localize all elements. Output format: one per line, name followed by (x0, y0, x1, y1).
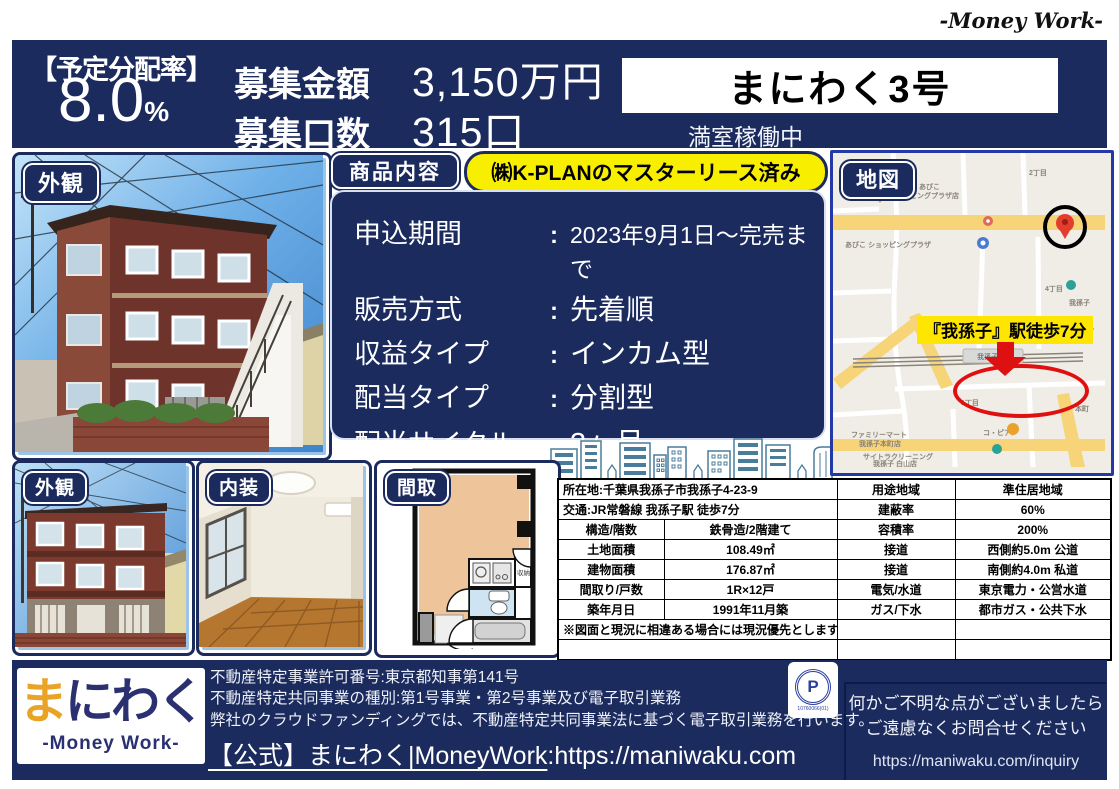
table-row: 建物面積 176.87㎡ 接道 南側約4.0m 私道 (558, 560, 1111, 580)
map-label: サイトラクリーニング (863, 452, 933, 461)
bcr-value-cell: 60% (955, 500, 1111, 520)
map-section-label: 地図 (841, 161, 915, 199)
gas-value-cell: 都市ガス・公共下水 (955, 600, 1111, 620)
flyer-page: -Money Work- 【予定分配率】 8.0% 募集金額 3,150万円 募… (0, 0, 1119, 789)
built-value-cell: 1991年11月築 (664, 600, 837, 620)
table-row: 所在地:千葉県我孫子市我孫子4-23-9 用途地域 準住居地域 (558, 479, 1111, 500)
row-value: 2023年9月1日〜完売まで (570, 216, 814, 284)
station-walk-flag: 『我孫子』駅徒歩7分 (917, 316, 1093, 344)
occupancy-status: 満室稼働中 (688, 118, 803, 152)
row-value: インカム型 (570, 332, 710, 372)
table-row: 構造/階数 鉄骨造/2階建て 容積率 200% (558, 520, 1111, 540)
skyline-illustration (548, 437, 840, 479)
gas-label-cell: ガス/下水 (837, 600, 955, 620)
land-area-label-cell: 土地面積 (558, 540, 664, 560)
road-value-cell: 西側約5.0m 公道 (955, 540, 1111, 560)
table-row: 交通:JR常磐線 我孫子駅 徒歩7分 建蔽率 60% (558, 500, 1111, 520)
road2-label-cell: 接道 (837, 560, 955, 580)
product-name-box: まにわく3号 (622, 58, 1058, 113)
exterior-main-label: 外観 (23, 163, 99, 203)
empty-cell (837, 620, 955, 640)
pmark-number: 10760066(01) (797, 706, 828, 712)
inquiry-url[interactable]: https://maniwaku.com/inquiry (873, 753, 1079, 771)
inquiry-line-2: ご遠慮なくお問合せください (866, 718, 1087, 741)
row-value: 先着順 (570, 288, 654, 328)
empty-cell (955, 640, 1111, 661)
property-spec-table: 所在地:千葉県我孫子市我孫子4-23-9 用途地域 準住居地域 交通:JR常磐線… (557, 478, 1112, 661)
layout-label-cell: 間取り/戸数 (558, 580, 664, 600)
row-label: 申込期間 (354, 212, 550, 251)
zoning-label-cell: 用途地域 (837, 479, 955, 500)
built-label-cell: 築年月日 (558, 600, 664, 620)
product-section-label: 商品内容 (331, 153, 459, 189)
closet-label: 収納 (517, 568, 530, 577)
table-row: 築年月日 1991年11月築 ガス/下水 都市ガス・公共下水 (558, 600, 1111, 620)
product-row-income-type: 収益タイプ : インカム型 (354, 332, 814, 372)
exterior-main-photo: 外観 (12, 152, 332, 461)
inquiry-line-1: 何かご不明な点がございましたら (849, 693, 1104, 716)
row-colon: : (550, 342, 566, 370)
map-illustration: 我孫子 JR くら寿司 あびこ ショッピングプラザ店 あびこ ショッピングプラザ… (833, 153, 1105, 467)
exterior-sub-photo: 外観 (12, 460, 195, 656)
far-label-cell: 容積率 (837, 520, 955, 540)
map-label: 我孫子 (1069, 298, 1090, 307)
offer-units-label: 募集口数 (234, 107, 412, 156)
map-panel: 地図 我孫子 JR くら (830, 150, 1114, 476)
row-colon: : (550, 298, 566, 326)
address-cell: 所在地:千葉県我孫子市我孫子4-23-9 (558, 479, 837, 500)
rate-value: 8.0% (58, 70, 169, 132)
map-arrow-head-icon (984, 357, 1026, 376)
table-row: 間取り/戸数 1R×12戸 電気/水道 東京電力・公営水道 (558, 580, 1111, 600)
pmark-letter: P (795, 669, 831, 705)
privacy-mark-icon: P 10760066(01) (788, 662, 838, 718)
map-label: 我孫子 白山店 (873, 459, 917, 467)
road2-value-cell: 南側約4.0m 私道 (955, 560, 1111, 580)
table-row: ※図面と現況に相違ある場合には現況優先とします。 (558, 620, 1111, 640)
map-arrow-icon (997, 342, 1014, 357)
registration-line-1: 不動産特定事業許可番号:東京都知事第141号 (210, 667, 874, 688)
rate-unit: % (144, 96, 169, 127)
table-row: 土地面積 108.49㎡ 接道 西側約5.0m 公道 (558, 540, 1111, 560)
row-label: 収益タイプ (354, 332, 550, 371)
layout-value-cell: 1R×12戸 (664, 580, 837, 600)
row-label: 配当タイプ (354, 376, 550, 415)
registration-lines: 不動産特定事業許可番号:東京都知事第141号 不動産特定共同事業の種別:第1号事… (210, 667, 874, 731)
floorplan-panel: 間取 収納 (374, 460, 561, 658)
row-colon: : (550, 386, 566, 414)
logo-wordmark: まにわく (19, 678, 203, 727)
map-label: あびこ ショッピングプラザ (845, 240, 931, 249)
brand-script-text: -Money Work- (940, 8, 1103, 33)
product-row-application-period: 申込期間 : 2023年9月1日〜完売まで (354, 212, 814, 284)
logo-subtitle: -Money Work- (42, 733, 179, 755)
product-detail-box: 申込期間 : 2023年9月1日〜完売まで 販売方式 : 先着順 収益タイプ :… (332, 192, 824, 438)
building-area-value-cell: 176.87㎡ (664, 560, 837, 580)
inquiry-box: 何かご不明な点がございましたら ご遠慮なくお問合せください https://ma… (844, 682, 1106, 780)
road-label-cell: 接道 (837, 540, 955, 560)
official-site-line[interactable]: 【公式】まにわく|MoneyWork :https://maniwaku.com (208, 736, 796, 772)
registration-line-3: 弊社のクラウドファンディングでは、不動産特定共同事業法に基づく電子取引業務を行い… (210, 710, 874, 731)
row-colon: : (550, 222, 566, 250)
far-value-cell: 200% (955, 520, 1111, 540)
offer-units-value: 315口 (412, 98, 525, 158)
zoning-value-cell: 準住居地域 (955, 479, 1111, 500)
logo-rest: にわく (65, 675, 203, 729)
empty-cell (558, 640, 837, 661)
bcr-label-cell: 建蔽率 (837, 500, 955, 520)
product-row-dividend-type: 配当タイプ : 分割型 (354, 376, 814, 416)
row-label: 配当サイクル (354, 422, 550, 461)
footer-band: まにわく -Money Work- 不動産特定事業許可番号:東京都知事第141号… (12, 660, 1107, 780)
official-site-url[interactable]: :https://maniwaku.com (547, 742, 796, 771)
maniwaku-logo: まにわく -Money Work- (17, 668, 205, 764)
access-cell: 交通:JR常磐線 我孫子駅 徒歩7分 (558, 500, 837, 520)
floorplan-label: 間取 (385, 471, 449, 504)
rate-number: 8.0 (58, 66, 144, 135)
map-label: 4丁目 (1045, 285, 1063, 293)
table-row (558, 640, 1111, 661)
offer-units-row: 募集口数 315口 (234, 98, 525, 158)
map-label: ファミリーマート (851, 431, 907, 439)
product-row-sales-method: 販売方式 : 先着順 (354, 288, 814, 328)
map-label: 2丁目 (1029, 169, 1047, 177)
empty-cell (955, 620, 1111, 640)
header-band: 【予定分配率】 8.0% 募集金額 3,150万円 募集口数 315口 まにわく… (12, 40, 1107, 148)
structure-value-cell: 鉄骨造/2階建て (664, 520, 837, 540)
building-area-label-cell: 建物面積 (558, 560, 664, 580)
land-area-value-cell: 108.49㎡ (664, 540, 837, 560)
structure-label-cell: 構造/階数 (558, 520, 664, 540)
logo-ma: ま (19, 675, 65, 729)
row-label: 販売方式 (354, 288, 550, 327)
official-site-label[interactable]: 【公式】まにわく|MoneyWork (208, 736, 547, 772)
utility-label-cell: 電気/水道 (837, 580, 955, 600)
row-value: 分割型 (570, 376, 654, 416)
exterior-sub-label: 外観 (23, 471, 87, 504)
map-label: 我孫子本町店 (859, 439, 901, 448)
interior-label: 内装 (207, 471, 271, 504)
masterlease-highlight: ㈱K-PLANのマスターリース済み (464, 151, 828, 193)
empty-cell (837, 640, 955, 661)
interior-photo: 内装 (196, 460, 372, 656)
registration-line-2: 不動産特定共同事業の種別:第1号事業・第2号事業及び電子取引業務 (210, 688, 874, 709)
note-cell: ※図面と現況に相違ある場合には現況優先とします。 (558, 620, 837, 640)
utility-value-cell: 東京電力・公営水道 (955, 580, 1111, 600)
